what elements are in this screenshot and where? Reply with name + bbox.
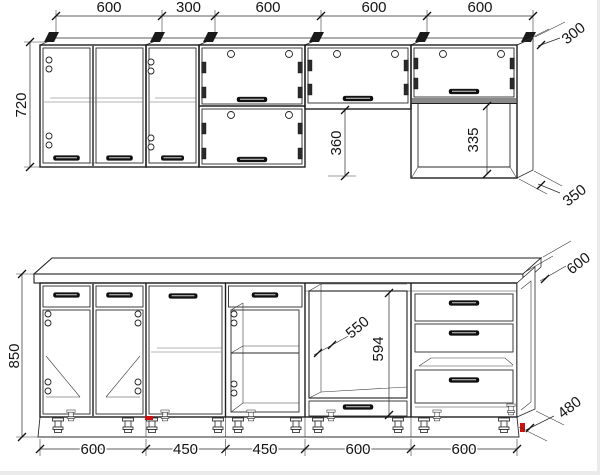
dim-upper-w5: 600 xyxy=(467,0,492,16)
assembly-drawing: 600 300 600 600 600 xyxy=(0,0,600,475)
dim-upper-height: 720 xyxy=(13,92,30,117)
dim-upper-w1: 600 xyxy=(96,0,121,16)
dim-base-depth: 480 xyxy=(555,393,585,422)
dim-upper-depth: 300 xyxy=(559,19,589,48)
drawing-page: 600 300 600 600 600 xyxy=(0,0,600,475)
red-marker-right xyxy=(520,423,525,432)
lower-height-dimension: 850 xyxy=(6,270,40,441)
dim-upper-w3: 600 xyxy=(255,0,280,16)
base-cabinet-600-drawers xyxy=(411,291,517,407)
dim-upper-w4: 600 xyxy=(361,0,386,16)
oven-niche-width-dimension: 550 xyxy=(314,313,373,357)
red-marker-left xyxy=(145,416,153,420)
dim-oven-width: 550 xyxy=(343,313,373,342)
dim-open-shelf-depth: 350 xyxy=(560,181,590,210)
upper-shelf-depth-dimension: 350 xyxy=(519,171,590,210)
dim-gap-360: 360 xyxy=(328,130,345,155)
lower-side-panel xyxy=(517,267,535,417)
dim-lower-w2: 450 xyxy=(173,441,198,458)
wall-cabinet-600-flap-double xyxy=(199,45,305,167)
worktop xyxy=(34,258,541,283)
dim-lower-w5: 600 xyxy=(451,441,476,458)
wall-cabinet-600-flap-open-shelf xyxy=(411,45,517,178)
wall-cabinet-300 xyxy=(146,45,199,167)
scan-edge-bottom xyxy=(0,471,600,475)
plinth-and-legs xyxy=(38,404,535,437)
dim-worktop-depth: 600 xyxy=(564,249,594,278)
dim-lower-w3: 450 xyxy=(252,441,277,458)
dim-lower-height: 850 xyxy=(6,343,23,368)
dim-lower-w4: 600 xyxy=(345,441,370,458)
dim-lower-w1: 600 xyxy=(80,441,105,458)
oven-niche-height-dimension: 594 xyxy=(370,289,393,419)
dim-shelf-height: 335 xyxy=(465,127,482,152)
upper-side-panel xyxy=(517,38,533,178)
wall-cabinet-600-double-door xyxy=(40,45,146,167)
base-cabinet-450-open xyxy=(229,286,303,412)
lower-cabinets: 600 xyxy=(6,241,594,458)
upper-cabinets: 600 300 600 600 600 xyxy=(13,0,590,210)
base-cabinet-450-door xyxy=(149,286,222,414)
lower-width-dimension: 600 450 450 600 600 xyxy=(36,439,521,458)
upper-width-dimension: 600 300 600 600 600 xyxy=(52,0,537,42)
wall-cabinet-600-flap-short xyxy=(305,45,411,109)
gap-dimension: 360 xyxy=(328,106,356,180)
base-cabinet-600-doors xyxy=(43,284,143,416)
dim-oven-height: 594 xyxy=(370,336,387,361)
dim-upper-w2: 300 xyxy=(176,0,201,16)
